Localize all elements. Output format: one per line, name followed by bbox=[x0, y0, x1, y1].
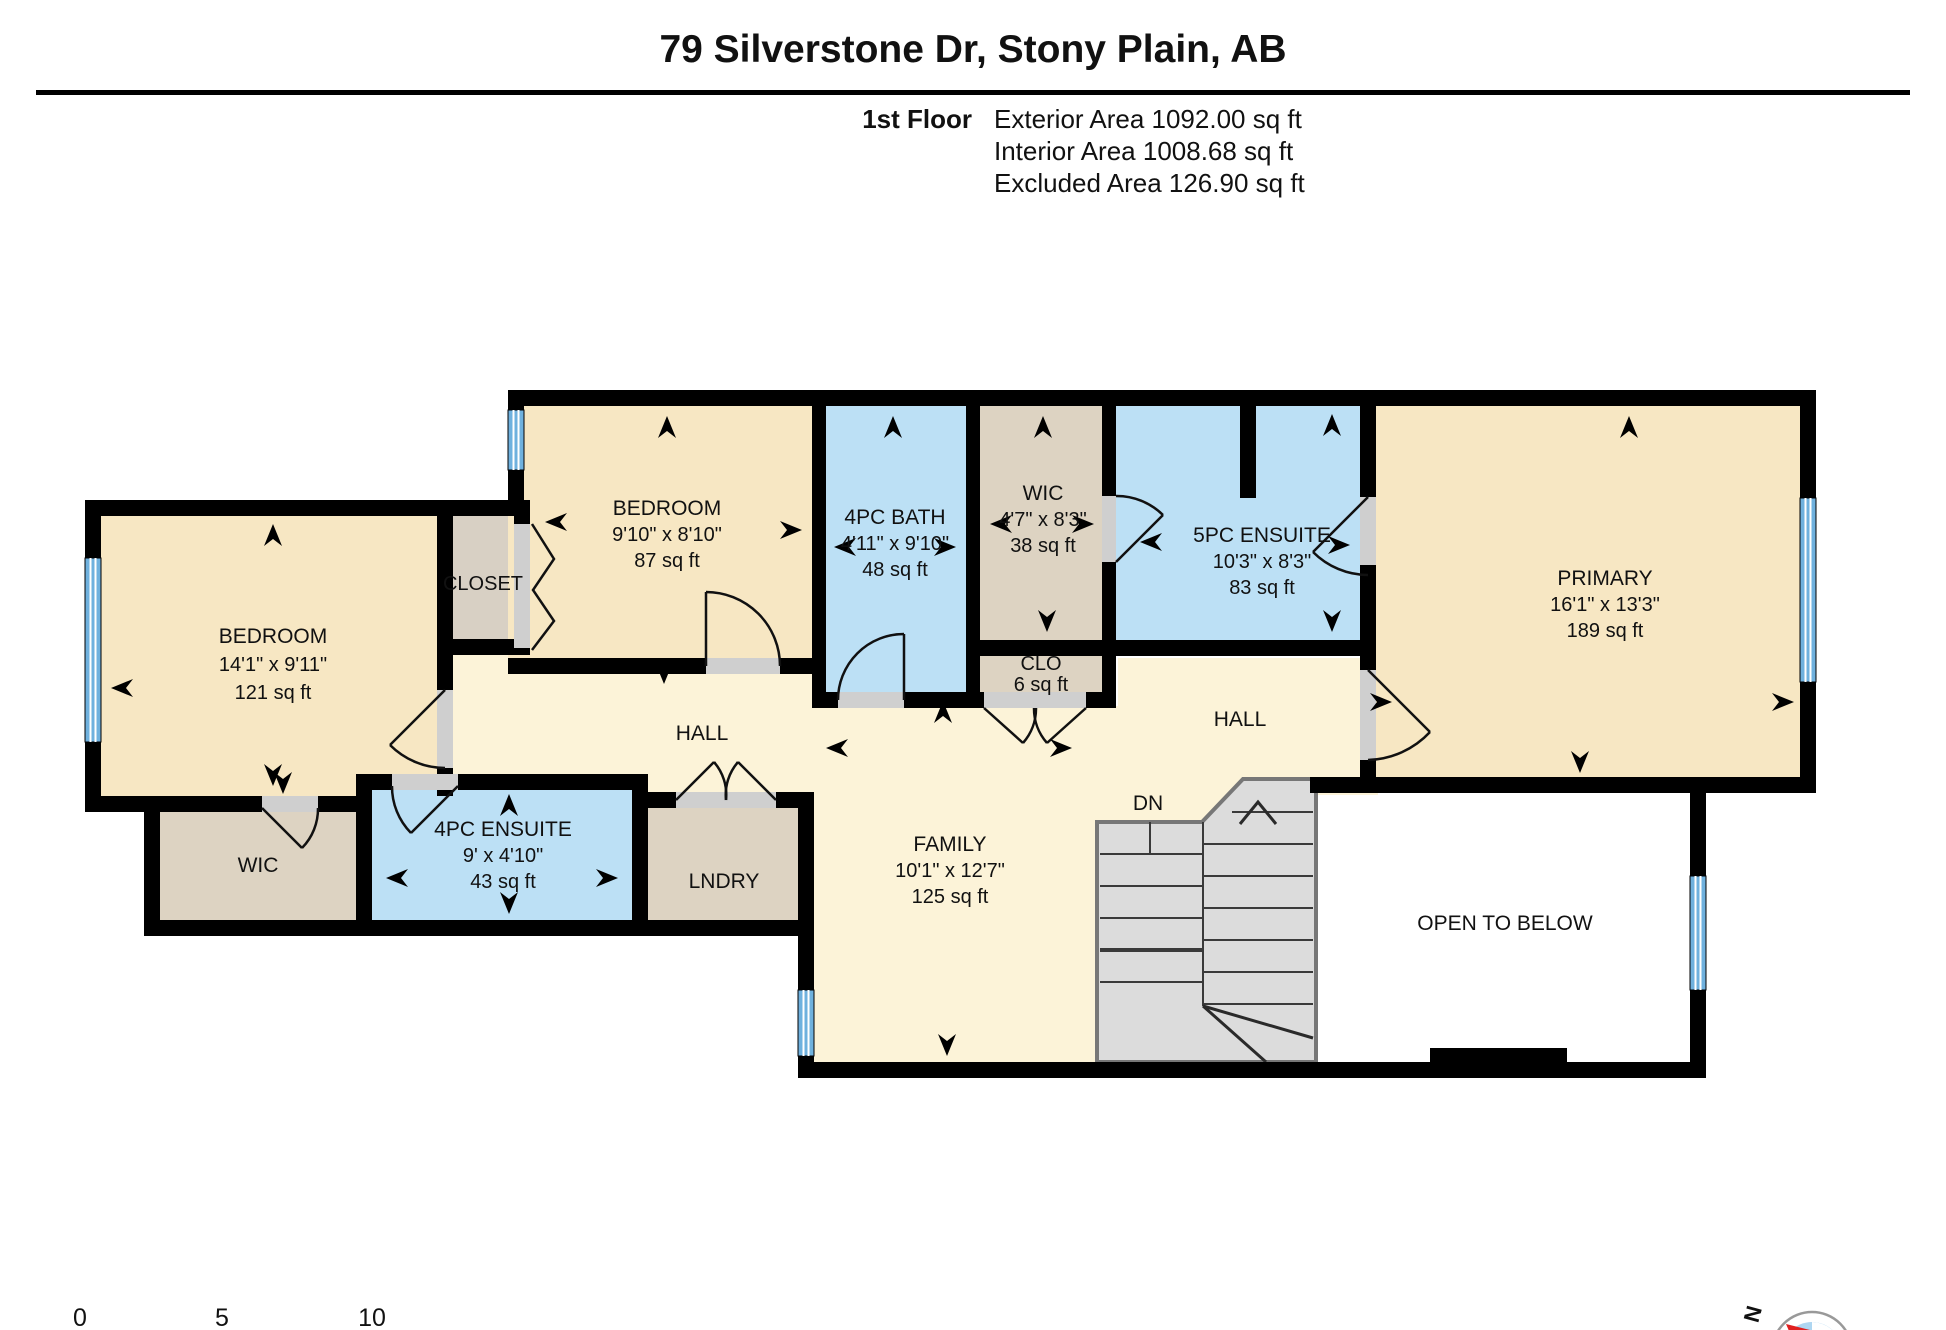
staircase bbox=[1097, 779, 1316, 1062]
stairwell-outline bbox=[1097, 779, 1316, 1062]
window-open-below bbox=[1690, 876, 1706, 990]
label-wic-bottom: WIC bbox=[238, 854, 279, 877]
room-fills bbox=[85, 390, 1816, 1064]
room-name: CLO bbox=[1020, 653, 1061, 675]
label-stairs-dn: DN bbox=[1133, 792, 1163, 815]
scale-tick-5: 5 bbox=[215, 1304, 229, 1330]
room-dims: 4'11" x 9'10" bbox=[841, 533, 949, 555]
room-dims: 9' x 4'10" bbox=[463, 845, 543, 867]
stat-interior-area: Interior Area 1008.68 sq ft bbox=[994, 136, 1294, 166]
floorplan-page: 79 Silverstone Dr, Stony Plain, AB 1st F… bbox=[0, 0, 1946, 1330]
room-name: BEDROOM bbox=[219, 625, 328, 648]
room-name: WIC bbox=[1023, 482, 1064, 505]
compass-icon: N bbox=[1739, 1303, 1852, 1330]
room-area: 48 sq ft bbox=[862, 559, 928, 581]
room-name: FAMILY bbox=[913, 833, 986, 856]
room-dims: 4'7" x 8'3" bbox=[999, 509, 1086, 531]
room-area: 125 sq ft bbox=[912, 886, 989, 908]
room-area: 6 sq ft bbox=[1014, 674, 1069, 696]
room-dims: 10'1" x 12'7" bbox=[895, 860, 1005, 882]
label-bedroom-left: BEDROOM 14'1" x 9'11" 121 sq ft bbox=[219, 625, 328, 704]
scale-bar: 0 5 10 bbox=[73, 1304, 386, 1330]
room-dims: 16'1" x 13'3" bbox=[1550, 594, 1660, 616]
label-laundry: LNDRY bbox=[689, 870, 760, 893]
room-dims: 9'10" x 8'10" bbox=[612, 524, 722, 546]
room-area: 83 sq ft bbox=[1229, 577, 1295, 599]
header-divider bbox=[36, 90, 1910, 95]
room-area: 87 sq ft bbox=[634, 550, 700, 572]
scale-tick-0: 0 bbox=[73, 1304, 87, 1330]
room-laundry-fill bbox=[632, 792, 814, 936]
label-clo: CLO 6 sq ft bbox=[1014, 653, 1069, 696]
room-name: 4PC BATH bbox=[844, 506, 945, 529]
page-title: 79 Silverstone Dr, Stony Plain, AB bbox=[659, 28, 1286, 71]
room-name: 4PC ENSUITE bbox=[434, 818, 572, 841]
header: 79 Silverstone Dr, Stony Plain, AB 1st F… bbox=[36, 28, 1910, 198]
room-area: 43 sq ft bbox=[470, 871, 536, 893]
window-bedroom2 bbox=[508, 410, 524, 470]
label-hall-left: HALL bbox=[676, 722, 729, 745]
label-hall-right: HALL bbox=[1214, 708, 1267, 731]
room-area: 38 sq ft bbox=[1010, 535, 1076, 557]
room-dims: 14'1" x 9'11" bbox=[219, 654, 327, 676]
room-area: 189 sq ft bbox=[1567, 620, 1644, 642]
room-name: BEDROOM bbox=[613, 497, 722, 520]
room-dims: 10'3" x 8'3" bbox=[1213, 551, 1312, 573]
window-primary bbox=[1800, 498, 1816, 682]
stat-excluded-area: Excluded Area 126.90 sq ft bbox=[994, 168, 1306, 198]
stat-exterior-area: Exterior Area 1092.00 sq ft bbox=[994, 104, 1303, 134]
room-name: 5PC ENSUITE bbox=[1193, 524, 1331, 547]
label-closet: CLOSET bbox=[443, 573, 523, 595]
room-area: 121 sq ft bbox=[235, 682, 312, 704]
floor-plan-canvas: 79 Silverstone Dr, Stony Plain, AB 1st F… bbox=[0, 0, 1946, 1330]
floor-label: 1st Floor bbox=[862, 104, 972, 134]
compass-north-label: N bbox=[1739, 1303, 1767, 1325]
scale-tick-10: 10 bbox=[358, 1304, 386, 1330]
label-open-to-below: OPEN TO BELOW bbox=[1417, 912, 1593, 935]
window-bedroom-left bbox=[85, 558, 101, 742]
window-family bbox=[798, 990, 814, 1056]
room-name: PRIMARY bbox=[1557, 567, 1652, 590]
